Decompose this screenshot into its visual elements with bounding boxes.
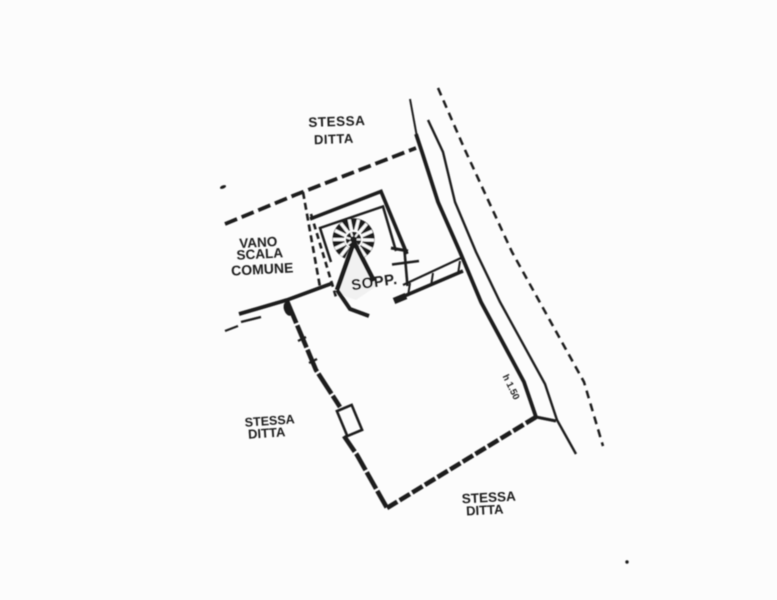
svg-text:DITTA: DITTA <box>248 424 287 442</box>
svg-text:DITTA: DITTA <box>314 131 354 147</box>
svg-text:STESSA: STESSA <box>308 113 366 130</box>
svg-text:DITTA: DITTA <box>466 502 505 519</box>
svg-text:COMUNE: COMUNE <box>231 259 294 278</box>
